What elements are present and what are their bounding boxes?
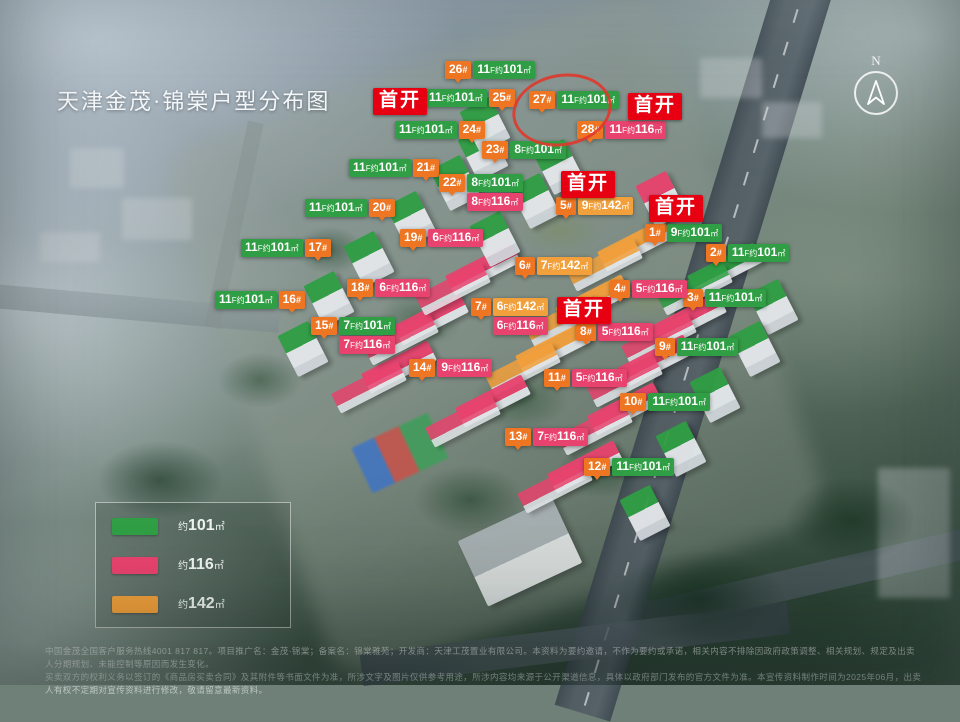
area-value: 116	[461, 360, 480, 374]
building-number: 9	[659, 339, 666, 353]
area-unit: ㎡	[475, 94, 483, 103]
building-number-badge: 22#	[439, 174, 465, 192]
shoukai-badge: 首开	[373, 88, 427, 115]
unit-label: 6F约142㎡	[493, 298, 549, 316]
area-unit: ㎡	[662, 463, 670, 472]
unit-label: 5F约116㎡	[598, 323, 653, 341]
area-unit: ㎡	[382, 341, 390, 350]
unit-labels: 11F约101㎡	[425, 89, 487, 107]
floors-suffix: F约	[503, 303, 516, 312]
number-suffix: #	[482, 302, 487, 312]
building-number-badge: 8#	[576, 323, 596, 341]
unit-label: 7F约142㎡	[537, 257, 593, 275]
building-number-badge: 7#	[471, 298, 491, 316]
legend-label: 约142㎡	[178, 595, 225, 613]
unit-labels: 11F约101㎡	[395, 121, 457, 139]
building-number-badge: 18#	[347, 279, 373, 297]
area-unit: ㎡	[383, 322, 391, 331]
area-unit: ㎡	[399, 164, 407, 173]
area-unit: ㎡	[418, 284, 426, 293]
building-number-badge: 24#	[459, 121, 485, 139]
unit-label: 9F约116㎡	[437, 359, 492, 377]
building-number-badge: 4#	[610, 280, 630, 298]
building-number: 24	[463, 122, 476, 136]
floors-suffix: F约	[478, 198, 491, 207]
unit-labels: 11F约101㎡	[473, 61, 535, 79]
number-suffix: #	[587, 327, 592, 337]
floors-value: 11	[245, 240, 258, 254]
floors-suffix: F约	[693, 343, 706, 352]
building-label-20: 11F约101㎡20#	[305, 199, 395, 217]
building-label-10: 10#11F约101㎡	[620, 393, 710, 411]
floors-suffix: F约	[442, 94, 455, 103]
floors-value: 11	[477, 62, 490, 76]
compass-arrow-icon	[863, 79, 889, 107]
floors-suffix: F约	[232, 296, 245, 305]
area-unit: ㎡	[471, 234, 479, 243]
number-suffix: #	[296, 295, 301, 305]
floors-suffix: F约	[366, 164, 379, 173]
unit-label: 9F约101㎡	[667, 224, 723, 242]
unit-label: 11F约101㎡	[215, 291, 277, 309]
area-value: 116	[595, 370, 614, 384]
compass: N	[850, 53, 902, 115]
unit-label: 6F约116㎡	[493, 317, 549, 335]
floors-value: 11	[709, 290, 722, 304]
number-suffix: #	[526, 261, 531, 271]
number-suffix: #	[601, 462, 606, 472]
shoukai-badge: 首开	[557, 297, 611, 324]
building-number: 23	[486, 142, 499, 156]
building-number-badge: 25#	[489, 89, 515, 107]
number-suffix: #	[462, 65, 467, 75]
unit-label: 11F约101㎡	[677, 338, 739, 356]
area-value: 142	[516, 299, 536, 313]
floors-suffix: F约	[622, 126, 635, 135]
area-value: 101	[734, 290, 754, 304]
legend-box: 约101㎡约116㎡约142㎡	[95, 502, 291, 628]
number-suffix: #	[637, 397, 642, 407]
area-value: 101	[503, 62, 523, 76]
area-unit: ㎡	[523, 66, 531, 75]
unit-labels: 6F约116㎡	[428, 229, 483, 247]
unit-label: 7F约101㎡	[339, 317, 395, 335]
building-number-badge: 14#	[409, 359, 435, 377]
compass-north-label: N	[850, 53, 902, 69]
floors-suffix: F约	[490, 66, 503, 75]
unit-label: 11F约101㎡	[648, 393, 710, 411]
unit-labels: 6F约116㎡	[375, 279, 430, 297]
legend-swatch	[112, 596, 158, 613]
area-unit: ㎡	[641, 328, 649, 337]
legend-item: 约142㎡	[112, 595, 274, 613]
area-value: 101	[335, 200, 355, 214]
building-label-1: 1#9F约101㎡	[645, 224, 722, 242]
building-number: 19	[404, 230, 417, 244]
floors-suffix: F约	[582, 374, 595, 383]
number-suffix: #	[694, 293, 699, 303]
legend-area: 101	[188, 517, 215, 534]
building-number-badge: 10#	[620, 393, 646, 411]
building-label-21: 11F约101㎡21#	[349, 159, 439, 177]
area-value: 101	[491, 175, 511, 189]
unit-labels: 7F约142㎡	[537, 257, 593, 275]
building-number: 18	[351, 280, 364, 294]
unit-labels: 5F约116㎡	[572, 369, 627, 387]
unit-label: 11F约101㎡	[305, 199, 367, 217]
building-label-26: 26#11F约101㎡	[445, 61, 535, 79]
floors-suffix: F约	[547, 262, 560, 271]
unit-label: 11F约116㎡	[605, 121, 666, 139]
building-label-5: 5#9F约142㎡	[556, 197, 633, 215]
floors-suffix: F约	[448, 364, 461, 373]
floors-value: 11	[429, 90, 442, 104]
area-value: 101	[245, 292, 265, 306]
unit-labels: 11F约101㎡	[705, 289, 767, 307]
floors-suffix: F约	[322, 204, 335, 213]
area-unit: ㎡	[777, 249, 785, 258]
building-label-3: 3#11F约101㎡	[683, 289, 766, 307]
area-unit: ㎡	[480, 364, 488, 373]
floors-value: 11	[309, 200, 322, 214]
disclaimer-line-1: 中国金茂全国客户服务热线4001 817 817。项目推广名：金茂·锦棠；备案名…	[45, 645, 922, 671]
unit-labels: 11F约101㎡	[677, 338, 739, 356]
legend-area: 142	[188, 595, 215, 612]
shoukai-badge: 首开	[649, 195, 703, 222]
building-label-12: 12#11F约101㎡	[584, 458, 674, 476]
floors-suffix: F约	[478, 179, 491, 188]
area-value: 116	[655, 281, 674, 295]
unit-label: 6F约116㎡	[428, 229, 483, 247]
area-unit: ㎡	[580, 262, 588, 271]
building-label-18: 18#6F约116㎡	[347, 279, 430, 297]
building-number: 15	[315, 318, 328, 332]
unit-label: 6F约116㎡	[375, 279, 430, 297]
floors-value: 11	[609, 122, 622, 136]
unit-labels: 9F约101㎡	[667, 224, 723, 242]
floors-value: 11	[353, 160, 366, 174]
area-value: 142	[560, 258, 580, 272]
unit-label: 9F约142㎡	[578, 197, 634, 215]
floors-suffix: F约	[677, 229, 690, 238]
floors-suffix: F约	[744, 249, 757, 258]
legend-approx: 约	[178, 561, 188, 572]
building-number: 12	[588, 459, 601, 473]
area-value: 101	[455, 90, 475, 104]
legend-approx: 约	[178, 522, 188, 533]
building-number: 6	[519, 258, 526, 272]
unit-label: 11F约101㎡	[241, 239, 303, 257]
unit-labels: 8F约101㎡8F约116㎡	[467, 174, 523, 211]
legend-item: 约116㎡	[112, 556, 274, 574]
number-suffix: #	[430, 163, 435, 173]
area-value: 101	[425, 122, 445, 136]
area-value: 101	[379, 160, 399, 174]
floors-suffix: F约	[350, 322, 363, 331]
building-label-11: 11#5F约116㎡	[544, 369, 627, 387]
floors-value: 11	[681, 339, 694, 353]
legend-unit: ㎡	[215, 522, 225, 533]
floors-suffix: F约	[608, 328, 621, 337]
building-number-badge: 9#	[655, 338, 675, 356]
building-number-badge: 6#	[515, 257, 535, 275]
number-suffix: #	[456, 178, 461, 188]
building-number: 2	[710, 245, 717, 259]
legend-rows: 约101㎡约116㎡约142㎡	[112, 517, 274, 613]
building-number: 25	[493, 90, 506, 104]
building-label-22: 22#8F约101㎡8F约116㎡	[439, 174, 523, 211]
building-number: 5	[560, 198, 567, 212]
disclaimer-line-2: 买卖双方的权利义务以签订的《商品房买卖合同》及其附件等书面文件为准，所涉文字及图…	[45, 671, 922, 697]
building-number-badge: 12#	[584, 458, 610, 476]
unit-labels: 5F约116㎡	[598, 323, 653, 341]
unit-label: 11F约101㎡	[395, 121, 457, 139]
building-number: 20	[373, 200, 386, 214]
unit-label: 5F约116㎡	[572, 369, 627, 387]
building-number-badge: 16#	[279, 291, 305, 309]
area-value: 101	[678, 394, 698, 408]
floors-suffix: F约	[503, 322, 516, 331]
building-number-badge: 13#	[505, 428, 531, 446]
unit-label: 11F约101㎡	[349, 159, 411, 177]
area-value: 116	[399, 280, 418, 294]
aerial-sitemap-poster: { "title": "天津金茂·锦棠户型分布图", "compass": { …	[0, 0, 960, 685]
floors-suffix: F约	[386, 284, 399, 293]
legend-item: 约101㎡	[112, 517, 274, 535]
building-number-badge: 23#	[482, 141, 508, 159]
building-label-8: 8#5F约116㎡	[576, 323, 653, 341]
area-unit: ㎡	[265, 296, 273, 305]
area-unit: ㎡	[576, 433, 584, 442]
unit-labels: 7F约116㎡	[533, 428, 588, 446]
unit-labels: 11F约101㎡	[305, 199, 367, 217]
building-number: 1	[649, 225, 656, 239]
building-number: 21	[417, 160, 430, 174]
area-unit: ㎡	[511, 179, 519, 188]
number-suffix: #	[567, 201, 572, 211]
area-value: 101	[706, 339, 726, 353]
number-suffix: #	[476, 125, 481, 135]
unit-label: 11F约101㎡	[612, 458, 674, 476]
number-suffix: #	[328, 321, 333, 331]
building-label-13: 13#7F约116㎡	[505, 428, 588, 446]
building-label-15: 15#7F约101㎡7F约116㎡	[311, 317, 395, 354]
area-value: 116	[516, 318, 535, 332]
area-value: 101	[363, 318, 383, 332]
floors-suffix: F约	[588, 202, 601, 211]
building-label-19: 19#6F约116㎡	[400, 229, 483, 247]
building-number-badge: 17#	[305, 239, 331, 257]
building-number-badge: 2#	[706, 244, 726, 262]
disclaimer: 中国金茂全国客户服务热线4001 817 817。项目推广名：金茂·锦棠；备案名…	[45, 645, 922, 697]
building-number: 16	[283, 292, 296, 306]
area-unit: ㎡	[726, 343, 734, 352]
unit-label: 7F约116㎡	[533, 428, 588, 446]
building-label-6: 6#7F约142㎡	[515, 257, 592, 275]
legend-area: 116	[188, 556, 214, 573]
floors-value: 11	[219, 292, 232, 306]
area-unit: ㎡	[536, 303, 544, 312]
building-number: 3	[687, 290, 694, 304]
number-suffix: #	[322, 243, 327, 253]
area-value: 101	[271, 240, 291, 254]
floors-suffix: F约	[642, 285, 655, 294]
area-unit: ㎡	[615, 374, 623, 383]
building-label-14: 14#9F约116㎡	[409, 359, 492, 377]
unit-labels: 5F约116㎡	[632, 280, 687, 298]
building-number: 10	[624, 394, 637, 408]
building-label-17: 11F约101㎡17#	[241, 239, 331, 257]
area-unit: ㎡	[754, 294, 762, 303]
floors-suffix: F约	[258, 244, 271, 253]
building-number-badge: 26#	[445, 61, 471, 79]
floors-suffix: F约	[412, 126, 425, 135]
building-label-24: 11F约101㎡24#	[395, 121, 485, 139]
area-value: 101	[642, 459, 662, 473]
building-label-4: 4#5F约116㎡	[610, 280, 687, 298]
number-suffix: #	[656, 228, 661, 238]
area-unit: ㎡	[554, 146, 562, 155]
unit-label: 8F约116㎡	[467, 193, 523, 211]
building-label-16: 11F约101㎡16#	[215, 291, 305, 309]
building-number-badge: 5#	[556, 197, 576, 215]
area-unit: ㎡	[675, 285, 683, 294]
unit-labels: 9F约142㎡	[578, 197, 634, 215]
legend-label: 约101㎡	[178, 517, 225, 535]
area-unit: ㎡	[536, 322, 544, 331]
area-unit: ㎡	[355, 204, 363, 213]
building-number-badge: 20#	[369, 199, 395, 217]
unit-labels: 11F约101㎡	[241, 239, 303, 257]
area-value: 116	[557, 429, 576, 443]
shoukai-badge: 首开	[628, 93, 682, 120]
number-suffix: #	[522, 432, 527, 442]
unit-label: 8F约101㎡	[467, 174, 523, 192]
building-number: 8	[580, 324, 587, 338]
number-suffix: #	[426, 363, 431, 373]
area-unit: ㎡	[291, 244, 299, 253]
unit-label: 7F约116㎡	[339, 336, 395, 354]
unit-label: 11F约101㎡	[728, 244, 790, 262]
area-unit: ㎡	[445, 126, 453, 135]
floors-suffix: F约	[350, 341, 363, 350]
area-unit: ㎡	[654, 126, 662, 135]
building-label-9: 9#11F约101㎡	[655, 338, 738, 356]
unit-label: 5F约116㎡	[632, 280, 687, 298]
number-suffix: #	[666, 342, 671, 352]
compass-circle	[854, 71, 898, 115]
floors-suffix: F约	[439, 234, 452, 243]
building-number: 13	[509, 429, 522, 443]
building-label-7: 7#6F约142㎡6F约116㎡	[471, 298, 548, 335]
floors-suffix: F约	[629, 463, 642, 472]
building-number: 14	[413, 360, 426, 374]
floors-suffix: F约	[521, 146, 534, 155]
area-unit: ㎡	[698, 398, 706, 407]
building-number: 17	[309, 240, 322, 254]
number-suffix: #	[386, 203, 391, 213]
legend-label: 约116㎡	[178, 556, 224, 574]
number-suffix: #	[506, 93, 511, 103]
building-number-badge: 1#	[645, 224, 665, 242]
area-unit: ㎡	[510, 198, 518, 207]
unit-labels: 11F约101㎡	[648, 393, 710, 411]
unit-labels: 9F约116㎡	[437, 359, 492, 377]
unit-labels: 7F约101㎡7F约116㎡	[339, 317, 395, 354]
floors-suffix: F约	[544, 433, 557, 442]
building-number-badge: 11#	[544, 369, 570, 387]
building-label-25: 11F约101㎡25#	[425, 89, 515, 107]
number-suffix: #	[717, 248, 722, 258]
area-unit: ㎡	[621, 202, 629, 211]
building-number-badge: 19#	[400, 229, 426, 247]
number-suffix: #	[621, 284, 626, 294]
number-suffix: #	[417, 233, 422, 243]
floors-value: 11	[652, 394, 665, 408]
building-number: 11	[548, 370, 561, 384]
floors-suffix: F约	[665, 398, 678, 407]
number-suffix: #	[561, 373, 566, 383]
area-unit: ㎡	[710, 229, 718, 238]
area-value: 116	[491, 194, 510, 208]
building-number-badge: 21#	[413, 159, 439, 177]
area-value: 101	[757, 245, 777, 259]
legend-swatch	[112, 557, 158, 574]
area-value: 116	[635, 122, 654, 136]
legend-approx: 约	[178, 600, 188, 611]
legend-unit: ㎡	[215, 600, 225, 611]
legend-swatch	[112, 518, 158, 535]
building-number: 4	[614, 281, 621, 295]
unit-labels: 6F约142㎡6F约116㎡	[493, 298, 549, 335]
unit-labels: 11F约101㎡	[349, 159, 411, 177]
unit-labels: 11F约101㎡	[728, 244, 790, 262]
area-value: 142	[601, 198, 621, 212]
shoukai-badge: 首开	[561, 171, 615, 198]
floors-value: 11	[616, 459, 629, 473]
building-number-badge: 15#	[311, 317, 337, 335]
floors-value: 11	[399, 122, 412, 136]
building-number: 7	[475, 299, 482, 313]
area-value: 116	[363, 337, 382, 351]
floors-value: 11	[732, 245, 745, 259]
unit-label: 11F约101㎡	[425, 89, 487, 107]
building-label-2: 2#11F约101㎡	[706, 244, 789, 262]
area-value: 116	[621, 324, 640, 338]
area-value: 116	[452, 230, 471, 244]
unit-label: 11F约101㎡	[705, 289, 767, 307]
unit-labels: 11F约101㎡	[612, 458, 674, 476]
building-number: 22	[443, 175, 456, 189]
unit-labels: 11F约116㎡	[605, 121, 666, 139]
floors-suffix: F约	[721, 294, 734, 303]
legend-unit: ㎡	[214, 561, 224, 572]
page-title: 天津金茂·锦棠户型分布图	[57, 84, 330, 116]
unit-labels: 11F约101㎡	[215, 291, 277, 309]
number-suffix: #	[364, 283, 369, 293]
area-value: 101	[690, 225, 710, 239]
building-number: 26	[449, 62, 462, 76]
unit-label: 11F约101㎡	[473, 61, 535, 79]
number-suffix: #	[499, 145, 504, 155]
